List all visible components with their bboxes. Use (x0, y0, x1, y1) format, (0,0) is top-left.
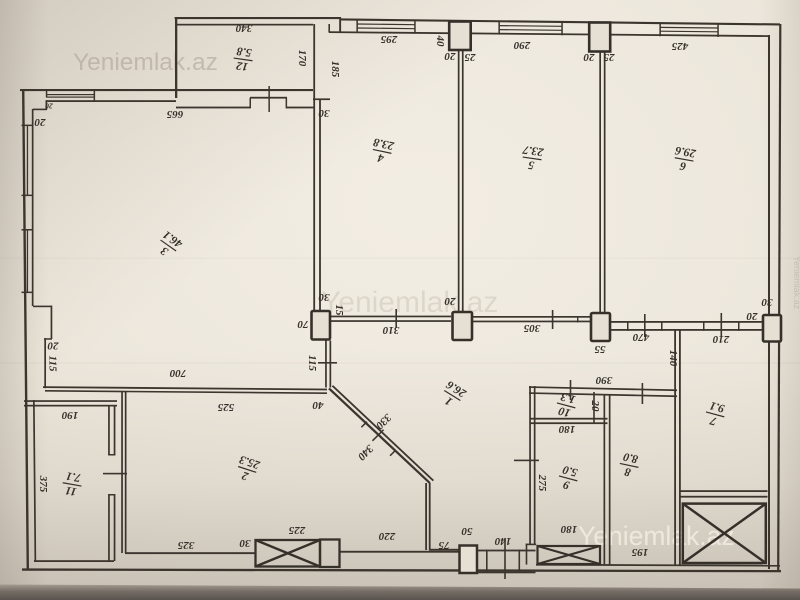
svg-text:12: 12 (235, 59, 249, 75)
svg-text:180: 180 (560, 523, 577, 535)
svg-text:140: 140 (667, 350, 679, 367)
svg-text:20: 20 (583, 51, 596, 63)
svg-text:220: 220 (378, 530, 396, 542)
svg-text:30: 30 (761, 296, 774, 308)
svg-text:140: 140 (494, 535, 511, 547)
svg-text:190: 190 (61, 409, 78, 421)
svg-text:195: 195 (631, 546, 648, 558)
svg-text:700: 700 (169, 367, 186, 379)
svg-text:115: 115 (306, 355, 318, 371)
svg-text:20: 20 (589, 400, 601, 413)
svg-text:115: 115 (47, 356, 59, 372)
svg-text:390: 390 (595, 374, 613, 386)
svg-text:180: 180 (558, 423, 575, 435)
svg-text:225: 225 (288, 524, 306, 536)
svg-text:20: 20 (45, 102, 54, 111)
svg-text:75: 75 (438, 539, 450, 551)
svg-text:25: 25 (464, 51, 477, 63)
svg-text:20: 20 (444, 295, 457, 307)
svg-text:525: 525 (217, 401, 234, 413)
svg-text:55: 55 (594, 343, 606, 355)
svg-text:15: 15 (333, 305, 345, 317)
svg-text:185: 185 (329, 61, 341, 78)
svg-text:7.1: 7.1 (65, 469, 82, 485)
svg-text:275: 275 (536, 474, 548, 492)
svg-text:Yeniemlak.az: Yeniemlak.az (792, 256, 800, 310)
svg-text:425: 425 (671, 40, 689, 52)
svg-text:40: 40 (434, 35, 446, 48)
svg-text:20: 20 (47, 340, 60, 352)
svg-text:310: 310 (382, 324, 400, 336)
svg-text:305: 305 (523, 322, 541, 334)
svg-text:40: 40 (312, 399, 325, 411)
svg-text:70: 70 (297, 318, 309, 330)
svg-text:30: 30 (318, 107, 331, 119)
svg-text:470: 470 (632, 331, 650, 343)
svg-text:5.8: 5.8 (236, 44, 253, 60)
svg-text:Yeniemlak.az: Yeniemlak.az (578, 521, 735, 551)
svg-text:30: 30 (318, 291, 331, 303)
svg-text:325: 325 (177, 539, 195, 551)
svg-text:170: 170 (296, 50, 308, 67)
svg-text:375: 375 (37, 475, 49, 493)
svg-text:290: 290 (513, 39, 531, 51)
svg-text:30: 30 (239, 537, 252, 549)
svg-text:20: 20 (34, 116, 47, 128)
svg-text:210: 210 (712, 333, 730, 345)
svg-text:25: 25 (603, 51, 616, 63)
svg-text:50: 50 (461, 525, 473, 537)
svg-text:20: 20 (444, 50, 457, 62)
svg-text:665: 665 (166, 108, 183, 120)
svg-text:295: 295 (380, 33, 398, 45)
svg-text:340: 340 (235, 22, 253, 34)
svg-text:Yeniemlak.az: Yeniemlak.az (73, 49, 218, 76)
svg-text:20: 20 (746, 310, 759, 322)
